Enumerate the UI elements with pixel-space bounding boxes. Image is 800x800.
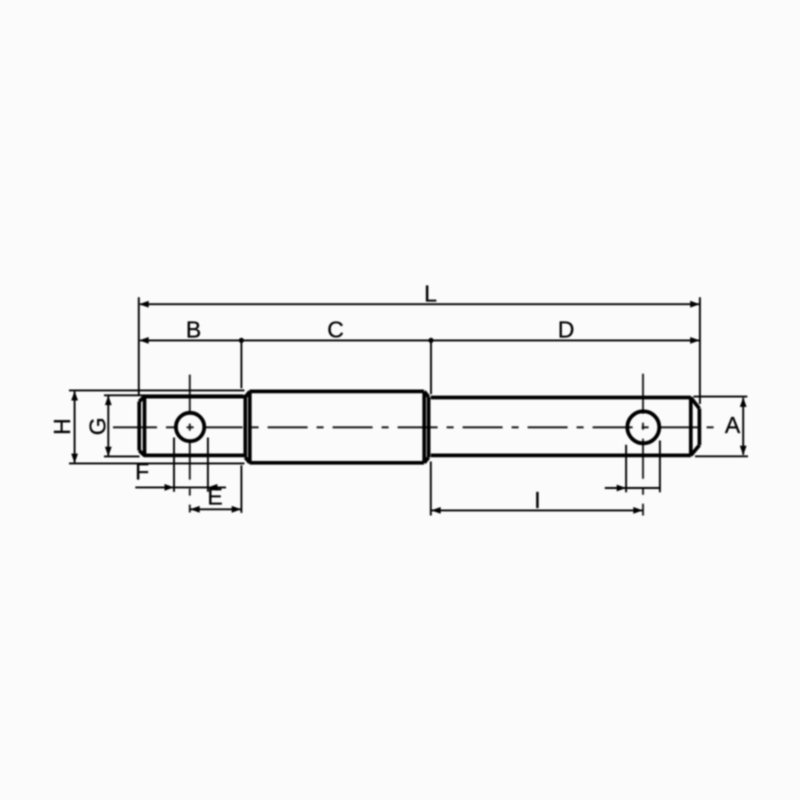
svg-text:F: F [135, 459, 149, 485]
svg-text:B: B [186, 316, 201, 342]
svg-text:A: A [725, 412, 741, 438]
svg-text:I: I [534, 487, 540, 513]
svg-text:H: H [49, 418, 75, 435]
svg-text:D: D [558, 316, 575, 342]
svg-text:C: C [327, 316, 344, 342]
svg-text:G: G [84, 417, 110, 435]
svg-text:E: E [207, 484, 222, 510]
svg-text:L: L [424, 281, 437, 307]
